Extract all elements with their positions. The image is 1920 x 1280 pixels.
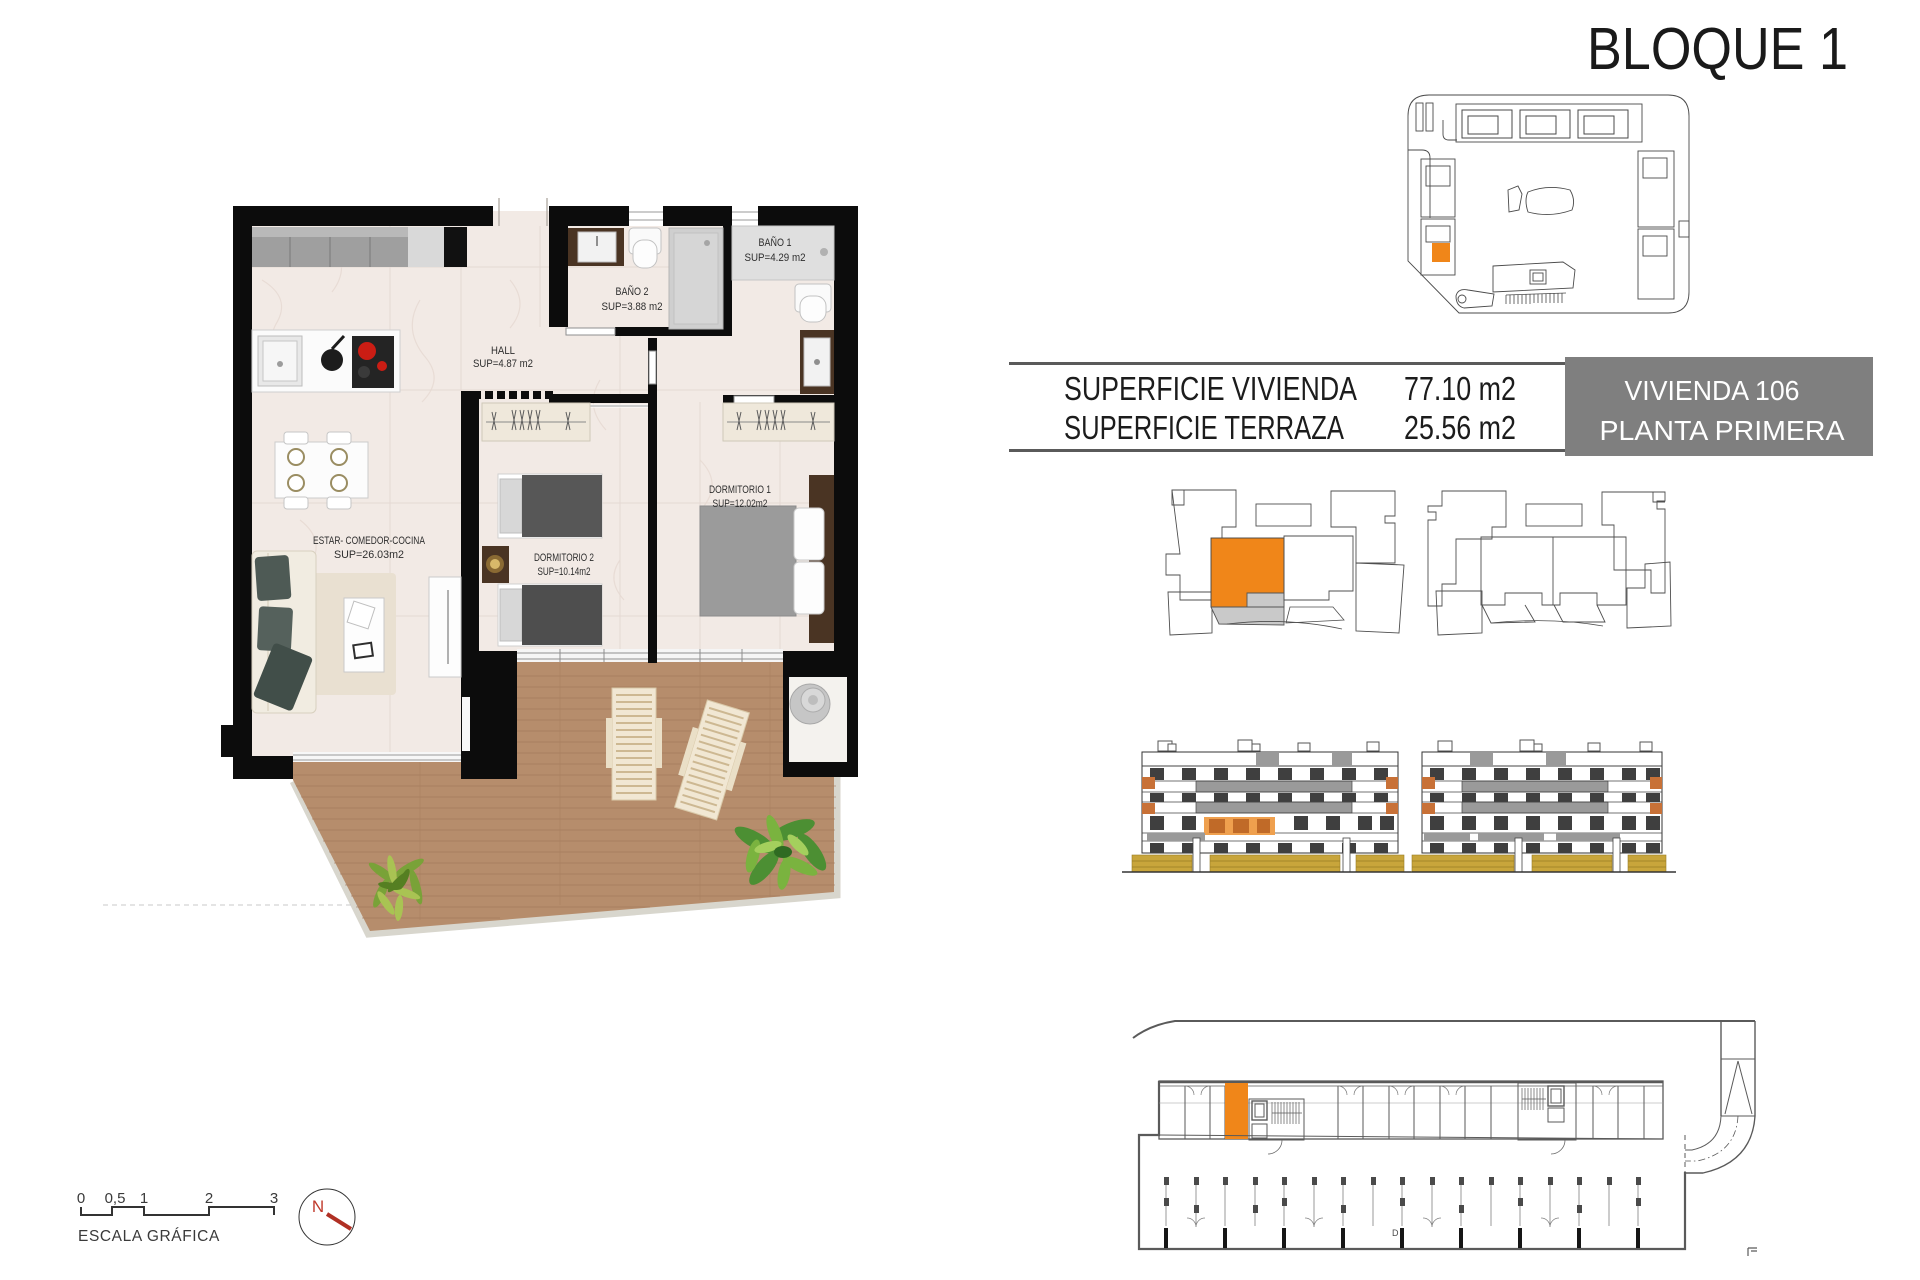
svg-text:SUP=4.29 m2: SUP=4.29 m2: [745, 252, 806, 264]
svg-text:SUP=3.88 m2: SUP=3.88 m2: [602, 301, 663, 313]
svg-text:SUP=10.14m2: SUP=10.14m2: [538, 566, 591, 578]
svg-text:77.10 m2: 77.10 m2: [1404, 370, 1516, 407]
svg-text:0,5: 0,5: [105, 1190, 126, 1207]
svg-text:PLANTA PRIMERA: PLANTA PRIMERA: [1600, 415, 1845, 446]
svg-text:BAÑO 2: BAÑO 2: [616, 285, 649, 298]
svg-text:3: 3: [270, 1190, 278, 1207]
svg-text:SUP=12.02m2: SUP=12.02m2: [713, 498, 768, 510]
svg-text:2: 2: [205, 1190, 213, 1207]
svg-text:SUPERFICIE VIVIENDA: SUPERFICIE VIVIENDA: [1064, 370, 1357, 407]
svg-text:N: N: [312, 1197, 324, 1216]
svg-text:DORMITORIO 2: DORMITORIO 2: [534, 552, 594, 564]
svg-text:1: 1: [140, 1190, 148, 1207]
svg-text:HALL: HALL: [491, 345, 515, 357]
svg-text:BLOQUE 1: BLOQUE 1: [1587, 16, 1848, 82]
svg-text:SUP=4.87 m2: SUP=4.87 m2: [473, 358, 533, 370]
svg-text:DORMITORIO 1: DORMITORIO 1: [709, 484, 771, 496]
svg-text:0: 0: [77, 1190, 85, 1207]
svg-text:BAÑO 1: BAÑO 1: [759, 236, 792, 249]
svg-text:ESTAR- COMEDOR-COCINA: ESTAR- COMEDOR-COCINA: [313, 535, 426, 547]
svg-text:SUP=26.03m2: SUP=26.03m2: [334, 549, 404, 561]
svg-text:25.56 m2: 25.56 m2: [1404, 409, 1516, 446]
svg-text:ESCALA GRÁFICA: ESCALA GRÁFICA: [78, 1228, 220, 1245]
svg-text:SUPERFICIE TERRAZA: SUPERFICIE TERRAZA: [1064, 409, 1344, 446]
svg-text:D: D: [1392, 1228, 1399, 1238]
svg-text:VIVIENDA 106: VIVIENDA 106: [1625, 375, 1800, 406]
